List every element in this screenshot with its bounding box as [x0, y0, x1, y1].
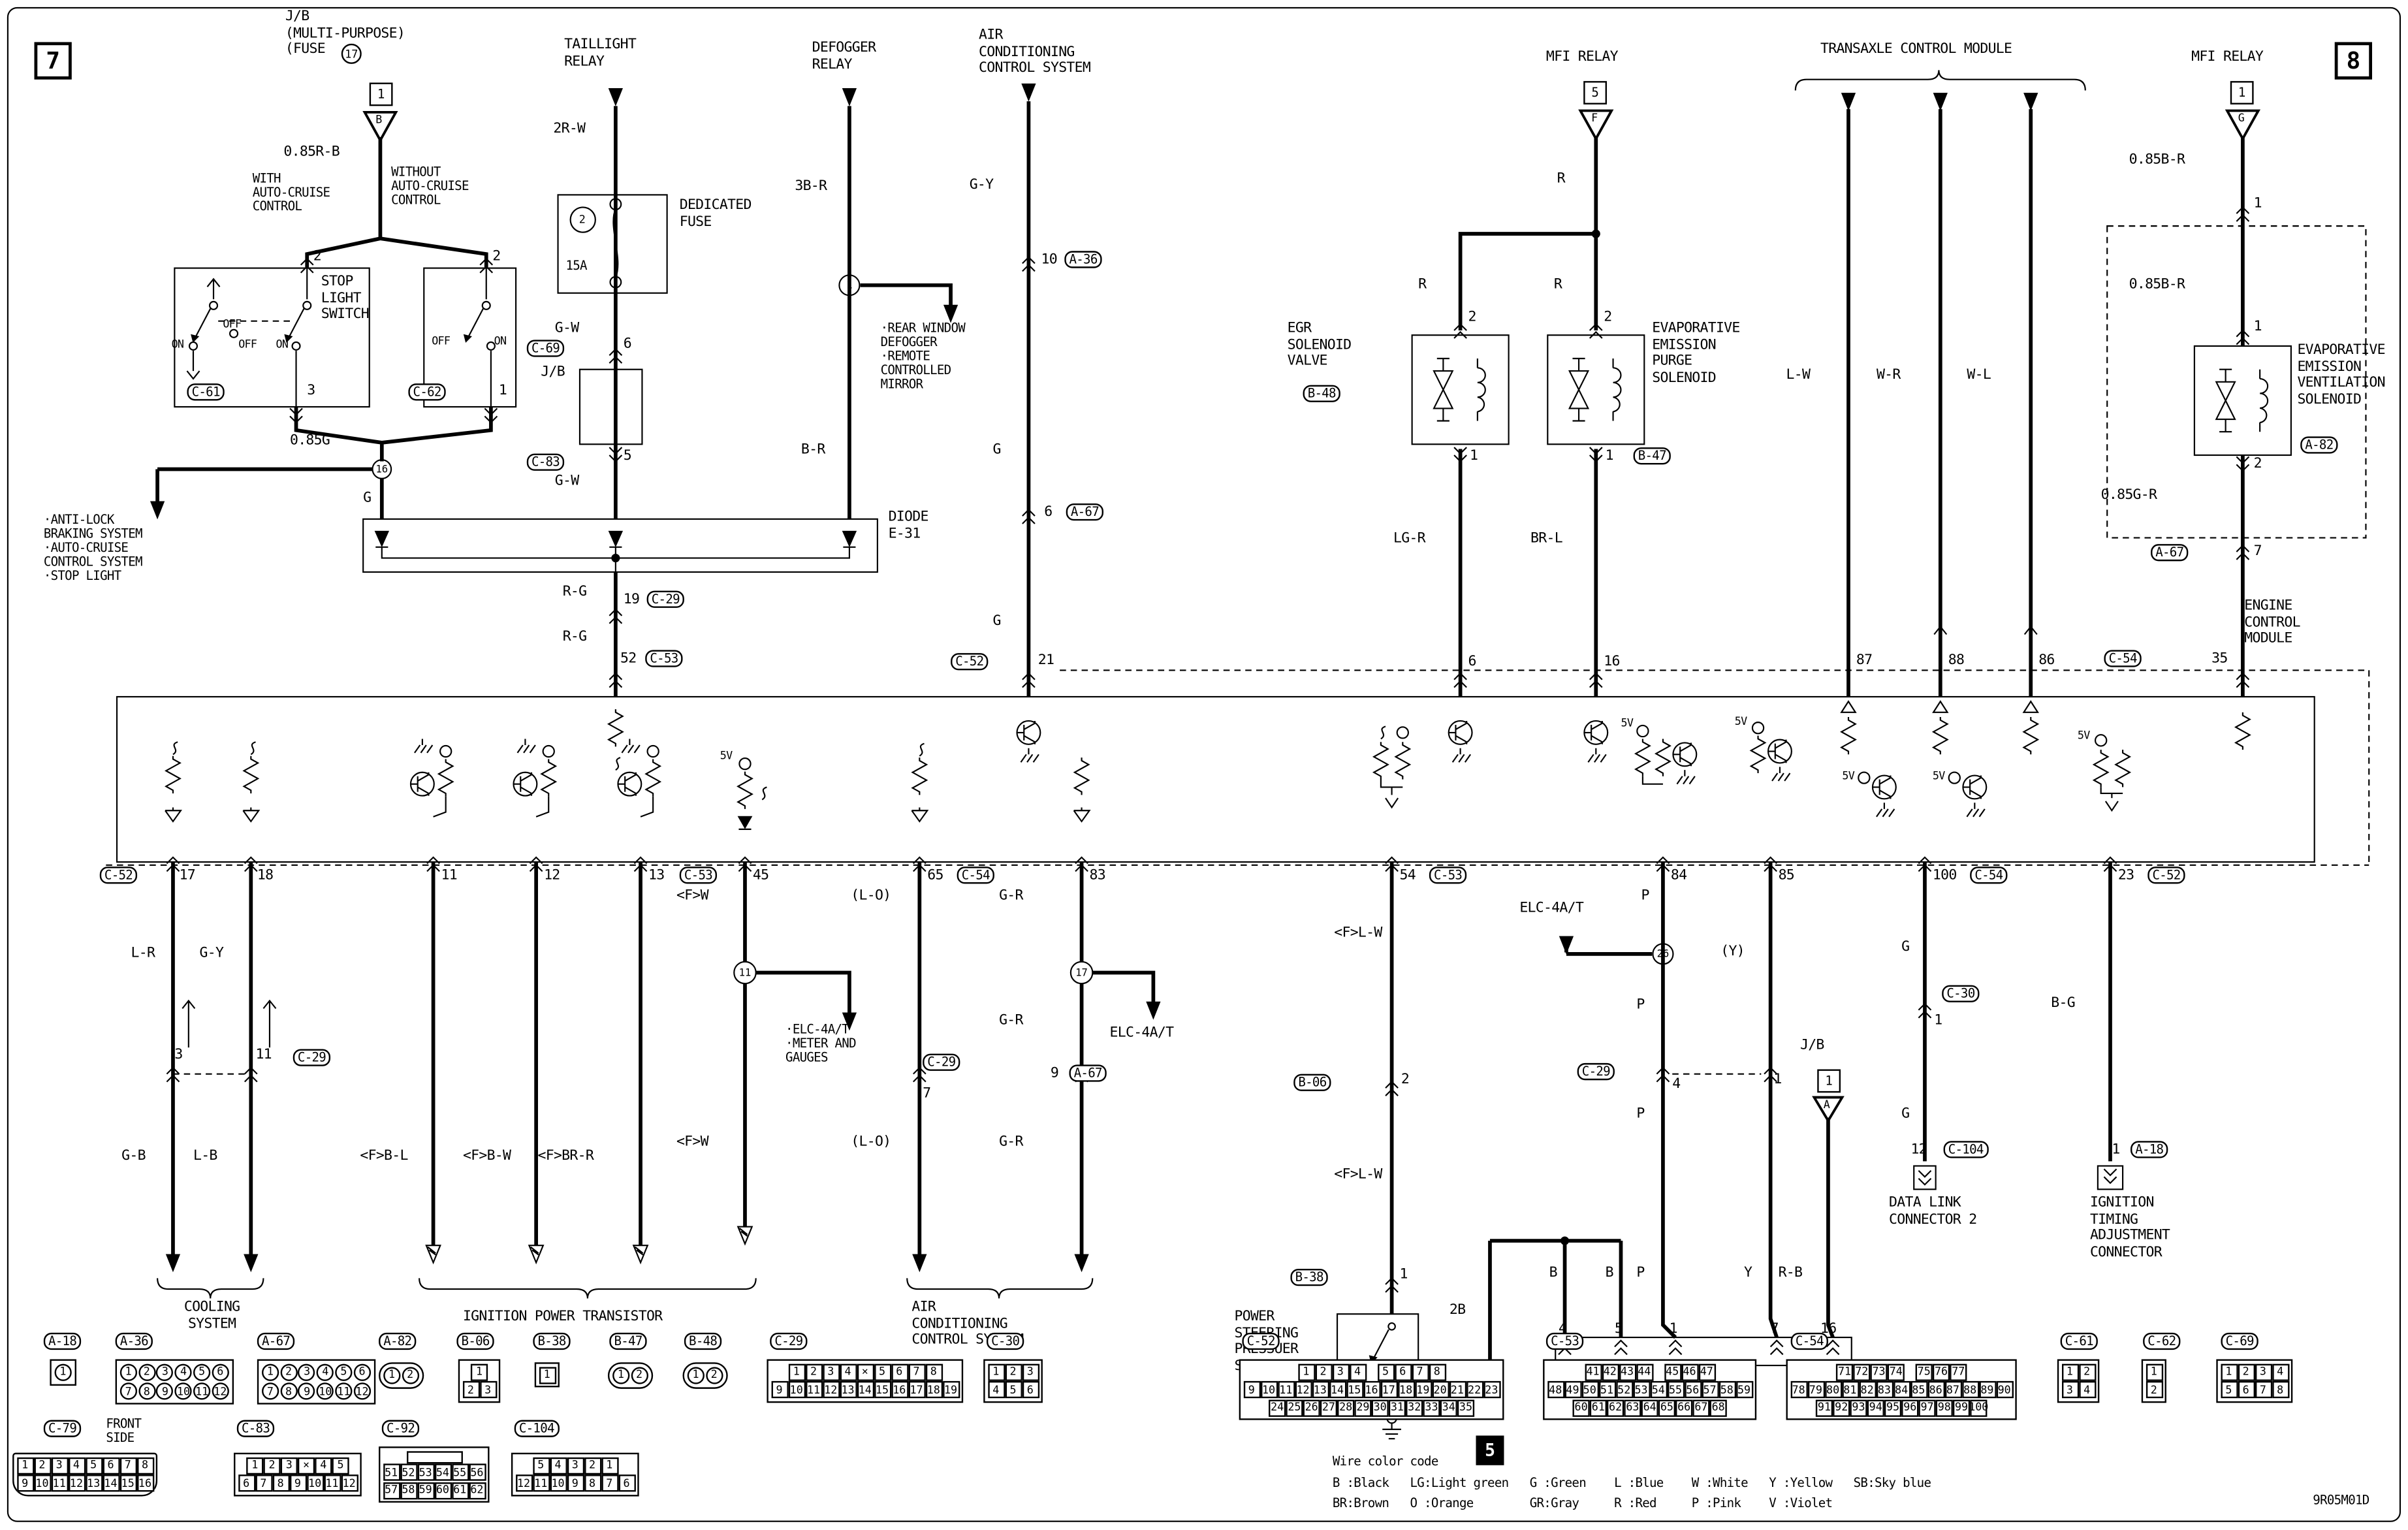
- connector-pin-cell: 59: [1735, 1381, 1752, 1398]
- connector-pin-cell: 61: [451, 1482, 468, 1499]
- connector-pin-cell: 18: [1397, 1381, 1414, 1398]
- connector-pin-cell: 72: [1853, 1363, 1870, 1380]
- connector-pin-cell: 42: [1602, 1363, 1619, 1380]
- connector-pin-cell: 2: [631, 1367, 648, 1384]
- connector-tag-b48: B-48: [1303, 385, 1340, 402]
- connector-tag-c29: C-29: [923, 1054, 960, 1071]
- connector-pin-cell: 5: [85, 1457, 102, 1474]
- connector-tag-c69: C-69: [2221, 1333, 2258, 1350]
- connector-pin-cell: 29: [1354, 1399, 1371, 1416]
- connector-pin-cell: 10: [1260, 1381, 1277, 1398]
- connector-pin-cell: 85: [1910, 1381, 1927, 1398]
- connector-pin-cell: 6: [238, 1474, 255, 1491]
- transistor-icon: [1449, 721, 1472, 744]
- connector-c53: 4142434445464748495051525354555657585960…: [1543, 1359, 1756, 1420]
- connector-tag-c29: C-29: [293, 1049, 330, 1066]
- fuse-15a: 15A: [565, 259, 586, 272]
- resistor-icon: [2115, 750, 2129, 787]
- connector-pin-cell: 2: [1314, 1363, 1331, 1380]
- evap-vent-label: EVAPORATIVE EMISSION VENTILATION SOLENOI…: [2297, 343, 2384, 408]
- connector-pin-cell: 6: [1394, 1363, 1411, 1380]
- connector-pin-cell: 15: [119, 1474, 136, 1491]
- connector-pin-cell: 59: [417, 1482, 434, 1499]
- diode-e31: [363, 519, 878, 572]
- connector-pin-cell: 97: [1918, 1399, 1935, 1416]
- connector-pin-cell: 9: [1243, 1381, 1260, 1398]
- connector-c79: 12345678910111213141516: [12, 1453, 157, 1496]
- ecm-internals: [165, 701, 2250, 829]
- connector-pin-cell: 12: [822, 1381, 839, 1398]
- connector-pin-cell: 6: [891, 1363, 908, 1380]
- without-acc-label: WITHOUT AUTO-CRUISE CONTROL: [391, 165, 469, 207]
- v5-label: 5V: [1621, 717, 1633, 729]
- wire-2rw: 2R-W: [553, 121, 585, 138]
- junction-26: 26: [1653, 949, 1673, 960]
- jb-pin-box: 1: [370, 83, 393, 106]
- connector-pin-cell: 17: [1380, 1381, 1397, 1398]
- connector-pin-cell: 3: [51, 1457, 68, 1474]
- resistor-icon: [1396, 742, 1410, 779]
- resistor-icon: [439, 759, 452, 796]
- connector-pin-cell: 2: [2078, 1363, 2095, 1380]
- connector-pin-cell: 12: [68, 1474, 85, 1491]
- connector-pin-cell: 15: [874, 1381, 891, 1398]
- ground-icon: [165, 807, 181, 821]
- connector-pin-cell: 12: [1294, 1381, 1311, 1398]
- connector-tag-c61: C-61: [187, 383, 224, 400]
- egr-solenoid-label: EGR SOLENOID VALVE: [1288, 321, 1352, 370]
- mfi-pin-box: 5: [1583, 81, 1607, 104]
- pin-1: 1: [1606, 449, 1613, 465]
- lamp-icon: [440, 746, 451, 757]
- diode-e31-label: DIODE E-31: [889, 510, 928, 543]
- connector-a36: 123456789101112: [116, 1359, 234, 1404]
- jb-label: J/B: [541, 365, 565, 381]
- connector-pin-cell: 1: [54, 1363, 71, 1380]
- connector-pin-cell: 9: [157, 1383, 174, 1400]
- connector-pin-cell: 17: [908, 1381, 925, 1398]
- pin-1: 1: [2254, 197, 2262, 213]
- connector-pin-cell: 4: [987, 1381, 1004, 1398]
- connector-pin-cell: 10: [175, 1383, 192, 1400]
- connector-pin-cell: 45: [1664, 1363, 1681, 1380]
- connector-pin-cell: 10: [317, 1383, 334, 1400]
- color-code-line2: BR:Brown O :Orange GR:Gray R :Red P :Pin…: [1333, 1497, 1832, 1510]
- ground-icon: [243, 807, 259, 821]
- connector-tag-b47: B-47: [609, 1333, 646, 1350]
- doc-code: 9R05M01D: [2313, 1493, 2369, 1507]
- connector-tag-c54: C-54: [2104, 650, 2141, 667]
- connector-pin-cell: 53: [417, 1463, 434, 1480]
- connector-pin-cell: 15: [1346, 1381, 1363, 1398]
- connector-pin-cell: 68: [1710, 1399, 1727, 1416]
- connector-pin-cell: 30: [1372, 1399, 1389, 1416]
- braces: [157, 1278, 1092, 1298]
- connector-pin-cell: 7: [2255, 1381, 2272, 1398]
- connector-pin-cell: 1: [262, 1363, 279, 1380]
- connector-pin-cell: 2: [263, 1457, 280, 1474]
- wire-3br: 3B-R: [795, 180, 827, 196]
- connector-pin-cell: 7: [119, 1457, 136, 1474]
- connector-pin-cell: 61: [1590, 1399, 1607, 1416]
- connector-pin-cell: 76: [1933, 1363, 1950, 1380]
- connector-pin-cell: 33: [1423, 1399, 1440, 1416]
- connector-pin-cell: 16: [891, 1381, 908, 1398]
- connector-pin-cell: 5: [193, 1363, 210, 1380]
- wire-lo: (L-O): [851, 889, 891, 905]
- connector-pin-cell: 11: [532, 1474, 549, 1491]
- small-connector-symbols: [1914, 1166, 2123, 1189]
- pin-11: 11: [255, 1047, 271, 1064]
- connector-pin-cell: 3: [2255, 1363, 2272, 1380]
- junction-16: 16: [372, 464, 392, 475]
- connector-pin-cell: 84: [1893, 1381, 1910, 1398]
- connector-pin-cell: 5: [532, 1457, 549, 1474]
- connector-pin-cell: 49: [1564, 1381, 1581, 1398]
- squiggle-icon: [919, 744, 924, 756]
- connector-key-slot: [406, 1450, 462, 1463]
- connector-tag-c30: C-30: [987, 1333, 1024, 1350]
- resistor-icon: [2236, 712, 2249, 750]
- connector-pin-cell: 77: [1950, 1363, 1967, 1380]
- connector-tag-b47: B-47: [1634, 447, 1671, 464]
- main-wires: [157, 101, 2243, 1369]
- connector-pin-cell: 62: [1607, 1399, 1624, 1416]
- wire-r: R: [1557, 172, 1565, 188]
- wire-fbrr: <F>BR-R: [538, 1149, 594, 1165]
- junction-17: 17: [1071, 968, 1092, 978]
- tcm-brace: [1796, 70, 2085, 90]
- wire-r: R: [1554, 278, 1562, 294]
- connector-pin-cell: 2: [805, 1363, 822, 1380]
- ecm-label: ENGINE CONTROL MODULE: [2244, 599, 2300, 648]
- connector-pin-cell: 22: [1466, 1381, 1483, 1398]
- junction-1: 1: [839, 281, 859, 291]
- cooling-system-label: COOLING SYSTEM: [164, 1300, 261, 1333]
- off-label: OFF: [238, 338, 257, 351]
- ground-icon: [1677, 770, 1694, 784]
- pin-35: 35: [2211, 652, 2227, 668]
- connector-tag-a82: A-82: [2300, 436, 2337, 453]
- connector-pin-cell: 2: [1004, 1363, 1021, 1380]
- pin-6: 6: [1468, 655, 1476, 671]
- dedicated-fuse-label: DEDICATED FUSE: [680, 198, 752, 231]
- pin-84: 84: [1671, 869, 1687, 885]
- connector-pin-cell: 88: [1961, 1381, 1978, 1398]
- connector-pin-cell: 57: [1701, 1381, 1718, 1398]
- wire-lb: L-B: [193, 1149, 217, 1165]
- ground-icon: [1588, 748, 1606, 762]
- connector-pin-cell: 5: [332, 1457, 349, 1474]
- resistor-icon: [609, 709, 622, 746]
- connector-tag-b38: B-38: [533, 1333, 570, 1350]
- connector-tag-a18: A-18: [44, 1333, 81, 1350]
- connector-pin-cell: 75: [1916, 1363, 1933, 1380]
- pin-3: 3: [174, 1047, 182, 1064]
- aircon-top-label: AIR CONDITIONING CONTROL SYSTEM: [979, 28, 1090, 77]
- connector-pin-cell: 56: [1684, 1381, 1701, 1398]
- connector-pin-cell: 98: [1936, 1399, 1953, 1416]
- connector-tag-b48: B-48: [684, 1333, 721, 1350]
- pin-87: 87: [1856, 653, 1872, 669]
- connector-pin-cell: 8: [272, 1474, 289, 1491]
- connector-pin-cell: 18: [925, 1381, 942, 1398]
- connector-pin-cell: 4: [317, 1363, 334, 1380]
- connector-pin-cell: 7: [1411, 1363, 1428, 1380]
- connector-pin-cell: 53: [1632, 1381, 1649, 1398]
- v5-label: 5V: [1933, 770, 1945, 782]
- connector-pin-cell: 2: [402, 1367, 419, 1384]
- resistor-icon: [738, 772, 752, 809]
- ground-icon: [1967, 803, 1984, 816]
- defogger-targets: ·REAR WINDOW DEFOGGER ·REMOTE CONTROLLED…: [881, 321, 965, 391]
- ground-ref-5: 5: [1476, 1435, 1504, 1465]
- connector-pin-cell: 56: [468, 1463, 485, 1480]
- v5-icon: [739, 758, 750, 769]
- dlc1-pin-5: 5: [1615, 1322, 1623, 1338]
- pin-52: 52: [620, 652, 636, 668]
- triangle-b-label: B: [375, 114, 381, 126]
- connector-pin-cell: 1: [612, 1367, 629, 1384]
- wiring-diagram-page: 7 8 J/B (MULTI-PURPOSE) (FUSE 17 1 B 0.8…: [0, 0, 2408, 1529]
- pin-12: 12: [1910, 1143, 1926, 1159]
- pin-17: 17: [180, 869, 195, 885]
- connector-tag-a36: A-36: [1064, 251, 1101, 268]
- pin-1: 1: [2254, 319, 2262, 336]
- connector-tag-b06: B-06: [456, 1333, 494, 1350]
- on-label: ON: [494, 335, 507, 347]
- connector-pin-cell: 63: [1624, 1399, 1641, 1416]
- pin-45: 45: [753, 869, 768, 885]
- connector-pin-cell: 46: [1681, 1363, 1698, 1380]
- pin-7: 7: [923, 1087, 930, 1103]
- connector-pin-cell: 8: [136, 1457, 153, 1474]
- connector-pin-cell: 11: [193, 1383, 210, 1400]
- connector-pin-cell: 1: [2061, 1363, 2078, 1380]
- connector-tag-c52: C-52: [951, 653, 988, 670]
- connector-pin-cell: 6: [102, 1457, 119, 1474]
- connector-pin-cell: 23: [1483, 1381, 1500, 1398]
- connector-pin-cell: 9: [770, 1381, 787, 1398]
- connector-pin-cell: 47: [1698, 1363, 1715, 1380]
- connector-tag-c29: C-29: [770, 1333, 807, 1350]
- resistor-icon: [1841, 717, 1855, 754]
- pin-2: 2: [492, 249, 500, 266]
- connector-pin-cell: 3: [298, 1363, 315, 1380]
- ground-icon: [2024, 701, 2038, 712]
- connector-pin-cell: 5: [1004, 1381, 1021, 1398]
- fuse-2: 2: [579, 214, 585, 226]
- connector-pin-cell: 8: [2272, 1381, 2289, 1398]
- connector-pin-cell: 71: [1836, 1363, 1853, 1380]
- connector-pin-cell: 32: [1406, 1399, 1423, 1416]
- ground-icon: [622, 739, 639, 752]
- triangle-f-label: F: [1591, 112, 1597, 125]
- connector-tag-b38: B-38: [1290, 1269, 1327, 1286]
- connector-pin-cell: ×: [298, 1457, 315, 1474]
- wiring-svg: [0, 0, 2408, 1529]
- mfi-pin-box: 1: [2230, 81, 2254, 104]
- taillight-relay-label: TAILLIGHT RELAY: [564, 37, 636, 70]
- connector-pin-cell: 8: [280, 1383, 297, 1400]
- connector-tag-c92: C-92: [382, 1420, 419, 1437]
- connector-pin-cell: 4: [315, 1457, 332, 1474]
- connector-pin-cell: 50: [1581, 1381, 1598, 1398]
- connector-pin-cell: 14: [102, 1474, 119, 1491]
- connector-pin-cell: 3: [1332, 1363, 1349, 1380]
- wire-gr: G-R: [999, 1135, 1023, 1151]
- connector-pin-cell: 26: [1303, 1399, 1320, 1416]
- page-border: [8, 8, 2400, 1522]
- pin-9: 9: [1051, 1066, 1058, 1083]
- wire-fbl: <F>B-L: [360, 1149, 407, 1165]
- wire-gr: G-R: [999, 1013, 1023, 1030]
- connector-pin-cell: 34: [1440, 1399, 1457, 1416]
- connector-c69: 12345678: [2216, 1359, 2292, 1402]
- connector-pin-cell: 13: [85, 1474, 102, 1491]
- resistor-icon: [1933, 717, 1947, 754]
- connector-pin-cell: 44: [1636, 1363, 1653, 1380]
- connector-pin-cell: 54: [1650, 1381, 1667, 1398]
- connector-pin-cell: 35: [1457, 1399, 1474, 1416]
- connector-pin-cell: 1: [2220, 1363, 2237, 1380]
- pin-1: 1: [499, 383, 507, 400]
- connector-pin-cell: 25: [1286, 1399, 1303, 1416]
- wire-085br: 0.85B-R: [2129, 153, 2185, 169]
- squiggle-icon: [616, 757, 620, 770]
- dlc1-pin-7: 7: [1771, 1322, 1779, 1338]
- wire-lw: L-W: [1786, 368, 1811, 384]
- connector-pin-cell: 4: [839, 1363, 856, 1380]
- connector-pin-cell: 54: [434, 1463, 451, 1480]
- squiggle-icon: [762, 787, 767, 799]
- connector-pin-cell: 89: [1978, 1381, 1995, 1398]
- wire-flw: <F>L-W: [1334, 1168, 1382, 1184]
- connector-c104: 543211211109876: [511, 1453, 639, 1496]
- connector-pin-cell: 12: [515, 1474, 532, 1491]
- resistor-icon: [1656, 739, 1670, 776]
- lamp-icon: [1752, 722, 1764, 733]
- connector-pin-cell: 4: [2272, 1363, 2289, 1380]
- connector-pin-cell: 1: [687, 1367, 704, 1384]
- v5-label: 5V: [1735, 716, 1747, 728]
- connector-pin-cell: 60: [434, 1482, 451, 1499]
- connector-pin-cell: 13: [1312, 1381, 1329, 1398]
- pin-2: 2: [2254, 456, 2262, 473]
- connector-pin-cell: 11: [1277, 1381, 1294, 1398]
- wire-rb: R-B: [1779, 1266, 1803, 1282]
- ground-icon: [1074, 807, 1090, 821]
- connector-pin-cell: 86: [1927, 1381, 1944, 1398]
- v5-label: 5V: [720, 750, 733, 762]
- transistor-icon: [1873, 776, 1896, 799]
- connector-pin-cell: 80: [1824, 1381, 1841, 1398]
- transistor-icon: [1768, 740, 1792, 763]
- wire-fbw: <F>B-W: [463, 1149, 511, 1165]
- connector-pin-cell: 64: [1641, 1399, 1658, 1416]
- pin-16: 16: [1604, 655, 1619, 671]
- connector-pin-cell: 9: [289, 1474, 306, 1491]
- connector-pin-cell: 11: [51, 1474, 68, 1491]
- connector-c92: 515253545556575859606162: [379, 1446, 489, 1503]
- itac-label: IGNITION TIMING ADJUSTMENT CONNECTOR: [2090, 1196, 2170, 1261]
- connector-tag-c104: C-104: [515, 1420, 559, 1437]
- meter-targets: ·ELC-4A/T ·METER AND GAUGES: [785, 1023, 856, 1064]
- connector-pin-cell: 1: [788, 1363, 805, 1380]
- connector-pin-cell: 8: [138, 1383, 155, 1400]
- connector-tag-a82: A-82: [379, 1333, 416, 1350]
- connector-pin-cell: 1: [471, 1363, 488, 1380]
- connector-tag-a67: A-67: [1066, 503, 1103, 520]
- wire-p: P: [1641, 889, 1649, 905]
- connector-a18: 1: [50, 1359, 76, 1385]
- connector-pin-cell: 58: [400, 1482, 417, 1499]
- connector-tag-a67: A-67: [2151, 544, 2188, 561]
- connector-tag-c83: C-83: [527, 454, 564, 471]
- wire-085rb: 0.85R-B: [283, 145, 340, 161]
- connector-c83: 123×456789101112: [234, 1453, 362, 1496]
- connector-pin-cell: 24: [1269, 1399, 1286, 1416]
- pin-3: 3: [307, 383, 315, 400]
- connector-pin-cell: 100: [1970, 1399, 1987, 1416]
- connector-pin-cell: 2: [280, 1363, 297, 1380]
- wire-lgr: LG-R: [1393, 532, 1425, 548]
- stoplight-targets: ·ANTI-LOCK BRAKING SYSTEM ·AUTO-CRUISE C…: [44, 513, 142, 582]
- connector-c62: 12: [2142, 1359, 2166, 1402]
- wire-g: G: [993, 443, 1001, 459]
- thin-arrows: [182, 627, 2037, 1047]
- off-label: OFF: [223, 318, 241, 330]
- pin-1: 1: [1470, 449, 1478, 465]
- resistor-icon: [1636, 739, 1649, 776]
- connector-b38: 1: [535, 1362, 560, 1387]
- connector-pin-cell: 95: [1884, 1399, 1901, 1416]
- connector-pin-cell: 10: [788, 1381, 805, 1398]
- ground-icon: [415, 739, 432, 752]
- connector-pin-cell: 4: [68, 1457, 85, 1474]
- pin-11: 11: [441, 869, 457, 885]
- connector-pin-cell: 7: [908, 1363, 925, 1380]
- wire-fw: <F>W: [676, 1135, 708, 1151]
- connector-pin-cell: 2: [2146, 1381, 2162, 1398]
- transistor-icon: [1584, 721, 1608, 744]
- resistor-icon: [2094, 750, 2108, 787]
- connector-pin-cell: 2: [2238, 1363, 2255, 1380]
- dlc2-label: DATA LINK CONNECTOR 2: [1889, 1196, 1976, 1228]
- connector-tag-c52: C-52: [100, 867, 137, 884]
- wire-p: P: [1636, 1107, 1644, 1123]
- color-code-title: Wire color code: [1333, 1454, 1438, 1468]
- connector-pin-cell: 1: [2146, 1363, 2162, 1380]
- wire-g: G: [993, 614, 1001, 630]
- v5-icon: [2095, 735, 2106, 746]
- connector-b47: 12: [608, 1362, 652, 1388]
- connector-pin-cell: 1: [120, 1363, 137, 1380]
- connector-pin-cell: 11: [335, 1383, 352, 1400]
- wire-flw: <F>L-W: [1334, 926, 1382, 942]
- supply-triangles: [365, 110, 2258, 1121]
- v5-icon: [1949, 773, 1960, 784]
- ground-arrow-icon: [1386, 798, 1398, 807]
- connector-tag-c54: C-54: [1791, 1333, 1828, 1350]
- v5-icon: [1637, 725, 1648, 737]
- connector-pin-cell: 48: [1547, 1381, 1564, 1398]
- wire-b: B: [1549, 1266, 1557, 1282]
- wire-lr: L-R: [131, 946, 155, 963]
- defogger-relay-label: DEFOGGER RELAY: [812, 40, 876, 73]
- transistor-icon: [514, 773, 537, 796]
- lamp-icon: [648, 746, 659, 757]
